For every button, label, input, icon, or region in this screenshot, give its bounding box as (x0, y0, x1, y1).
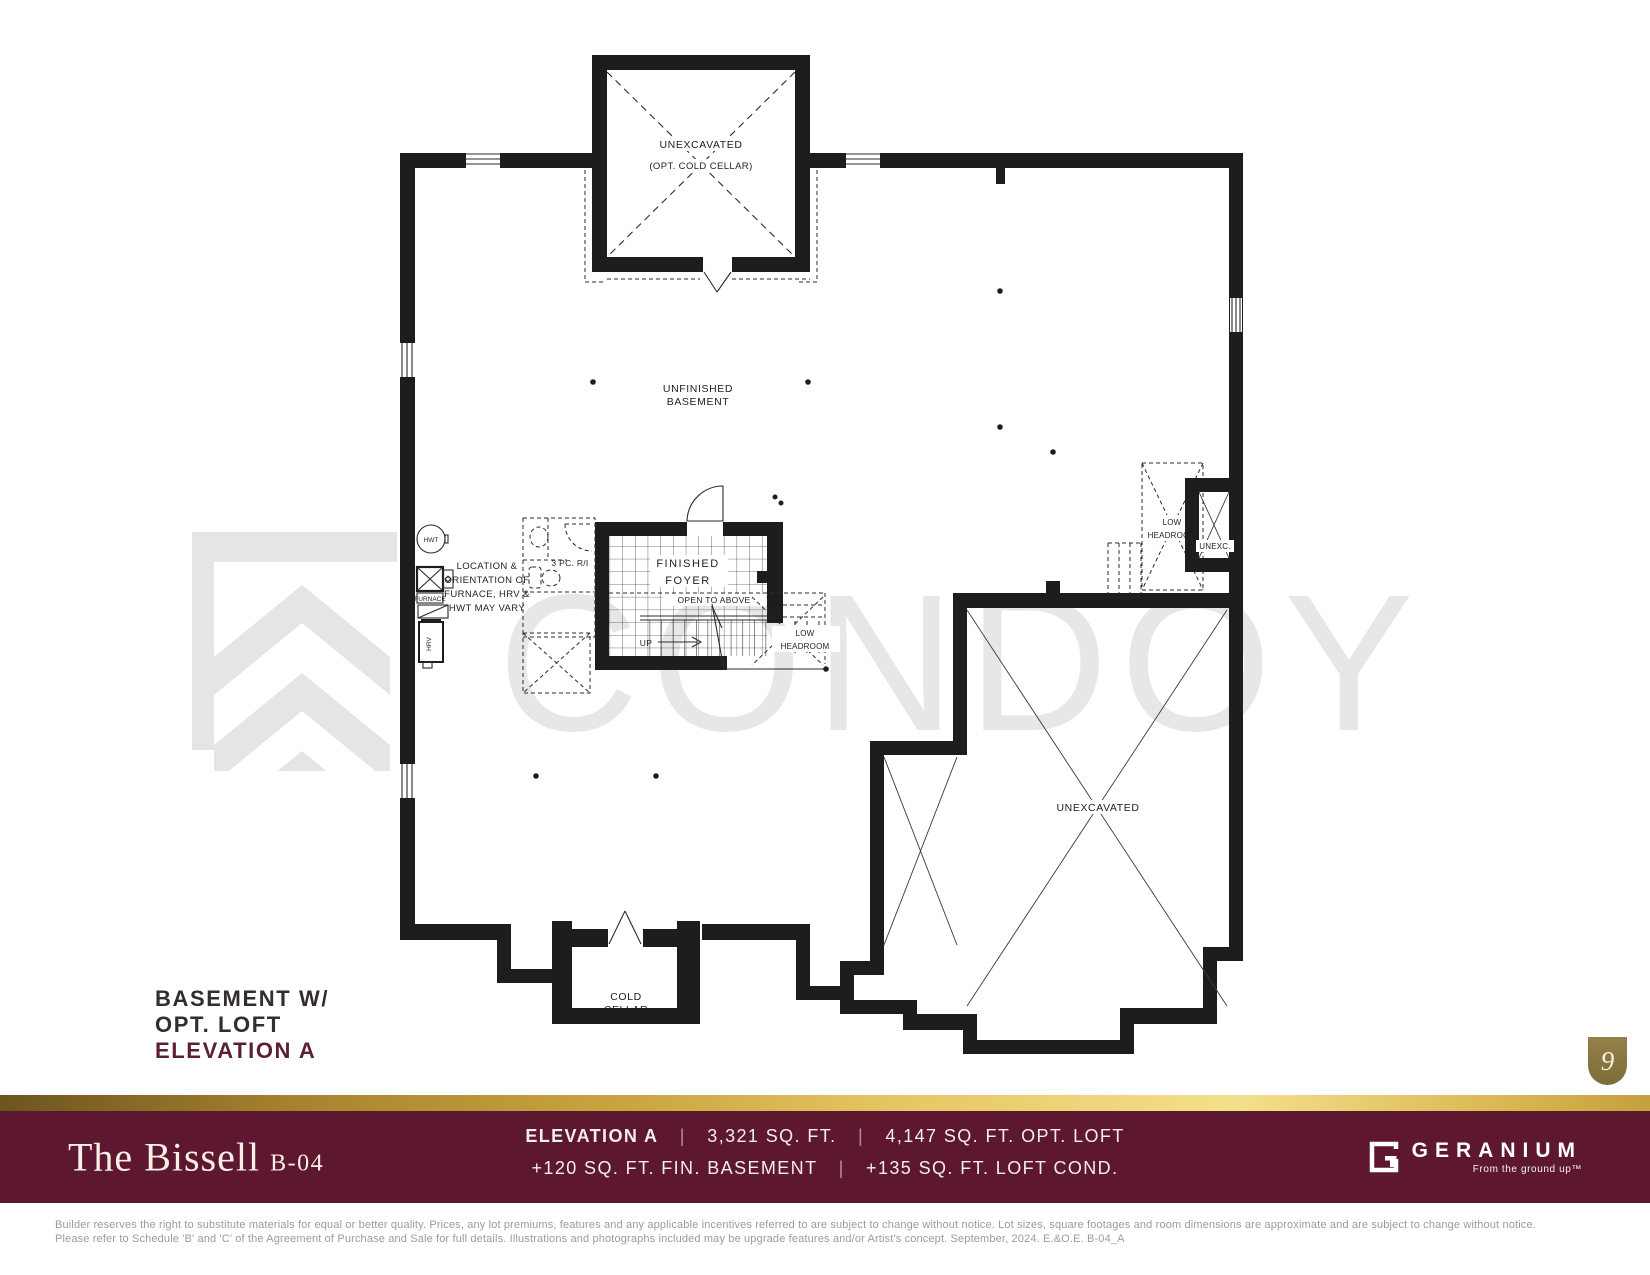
exterior-walls (400, 153, 1243, 938)
label-up: UP (640, 638, 652, 648)
room-label-foyer: FINISHED (656, 558, 719, 570)
room-finished-foyer: FINISHED FOYER OPEN TO ABOVE UP LOW HEAD… (595, 486, 840, 670)
plan-title-block: BASEMENT W/ OPT. LOFT ELEVATION A (155, 986, 329, 1064)
builder-brand: GERANIUM From the ground up™ (1369, 1139, 1582, 1175)
label-stair-low-headroom2: HEADROOM (781, 642, 830, 651)
room-label-unfinished: UNFINISHED (663, 383, 733, 395)
room-label-unexc-small: UNEXC. (1199, 542, 1230, 551)
room-label-cold-cellar: COLD (610, 991, 642, 1003)
mech-note-1: LOCATION & (457, 561, 518, 572)
page-number: 9 (1601, 1046, 1615, 1077)
room-opt-cold-cellar: UNEXCAVATED (OPT. COLD CELLAR) (585, 55, 817, 292)
spec-separator: | (858, 1126, 864, 1146)
plan-title-elevation: ELEVATION A (155, 1038, 329, 1064)
spec-separator: | (680, 1126, 686, 1146)
plan-title-line1: BASEMENT W/ (155, 986, 329, 1012)
mech-note-4: HWT MAY VARY (449, 603, 526, 614)
footer-bar: The BissellB-04 ELEVATION A | 3,321 SQ. … (0, 1111, 1650, 1203)
disclaimer-line-1: Builder reserves the right to substitute… (55, 1219, 1600, 1233)
spec-separator: | (839, 1158, 845, 1178)
room-label-foyer2: FOYER (665, 575, 710, 587)
spec-elevation: ELEVATION A (525, 1126, 658, 1146)
spec-loft-cond: +135 SQ. FT. LOFT COND. (866, 1158, 1118, 1178)
label-bath: 3 PC. R/I (551, 558, 588, 568)
spec-sqft: 3,321 SQ. FT. (707, 1126, 836, 1146)
model-number: B-04 (270, 1151, 324, 1177)
room-label-unfinished2: BASEMENT (667, 396, 730, 408)
mechanical-equipment: HWT FURNACE HRV LOCATION & ORIENTATION O… (414, 525, 530, 668)
foyer-door-swing (687, 486, 723, 521)
label-furnace: FURNACE (414, 596, 446, 603)
model-name: The Bissell (68, 1135, 260, 1180)
spec-line-2: +120 SQ. FT. FIN. BASEMENT | +135 SQ. FT… (525, 1158, 1124, 1179)
room-unexc-small: UNEXC. (1185, 478, 1243, 607)
basement-floorplan-drawing: UNEXCAVATED (OPT. COLD CELLAR) UNFINISHE… (0, 0, 1650, 1075)
plan-title-line2: OPT. LOFT (155, 1012, 329, 1038)
model-title: The BissellB-04 (68, 1134, 324, 1181)
window-symbols (399, 151, 1242, 798)
geranium-logo-icon (1369, 1139, 1399, 1175)
spec-summary: ELEVATION A | 3,321 SQ. FT. | 4,147 SQ. … (525, 1126, 1124, 1190)
label-right-low-headroom: LOW (1163, 518, 1182, 527)
builder-brand-text: GERANIUM From the ground up™ (1412, 1140, 1582, 1175)
room-label-top-cellar-sub: (OPT. COLD CELLAR) (649, 161, 752, 172)
room-label-cold-cellar2: CELLAR (604, 1004, 648, 1016)
label-open-to-above: OPEN TO ABOVE (677, 595, 750, 605)
room-cold-cellar: COLD CELLAR (400, 911, 700, 1024)
label-hwt: HWT (424, 537, 439, 544)
spec-loft-sqft: 4,147 SQ. FT. OPT. LOFT (885, 1126, 1124, 1146)
spec-line-1: ELEVATION A | 3,321 SQ. FT. | 4,147 SQ. … (525, 1126, 1124, 1147)
stair-treads (646, 620, 767, 656)
room-label-top-cellar: UNEXCAVATED (659, 139, 742, 151)
room-label-unexcavated: UNEXCAVATED (1056, 802, 1139, 814)
builder-name: GERANIUM (1412, 1140, 1582, 1161)
bath-rough-in: 3 PC. R/I (523, 518, 595, 693)
builder-tagline: From the ground up™ (1412, 1164, 1582, 1175)
label-stair-low-headroom: LOW (796, 629, 815, 638)
floorplan-page: CONDOY UNEXCAVATED (OPT. COLD CELL (0, 0, 1650, 1275)
page-number-badge: 9 (1588, 1037, 1627, 1085)
label-hrv: HRV (426, 637, 433, 651)
legal-disclaimer: Builder reserves the right to substitute… (55, 1219, 1600, 1246)
mech-note-2: ORIENTATION OF (445, 575, 530, 586)
gold-divider (0, 1095, 1650, 1111)
mech-note-3: FURNACE, HRV & (444, 589, 530, 600)
disclaimer-line-2: Please refer to Schedule 'B' and 'C' of … (55, 1233, 1600, 1247)
spec-fin-basement: +120 SQ. FT. FIN. BASEMENT (532, 1158, 818, 1178)
